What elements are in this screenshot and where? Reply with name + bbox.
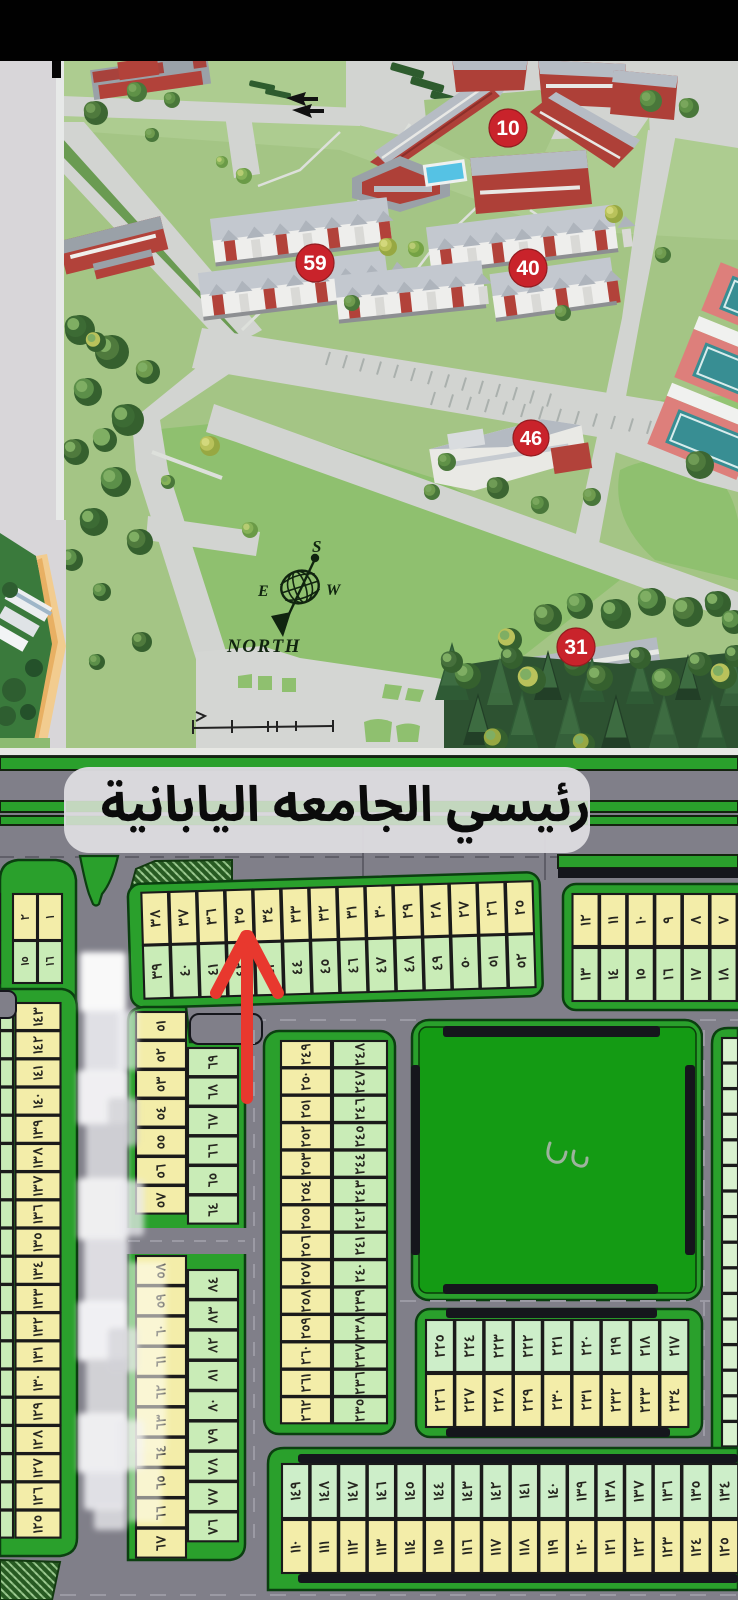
svg-text:W: W: [326, 582, 342, 599]
svg-text:E: E: [257, 583, 269, 600]
svg-text:NORTH: NORTH: [226, 636, 301, 657]
svg-text:31: 31: [564, 636, 588, 659]
svg-text:40: 40: [516, 257, 539, 280]
svg-text:59: 59: [303, 252, 326, 275]
svg-text:S: S: [312, 537, 321, 556]
svg-text:46: 46: [520, 428, 542, 450]
svg-text:10: 10: [496, 117, 519, 140]
